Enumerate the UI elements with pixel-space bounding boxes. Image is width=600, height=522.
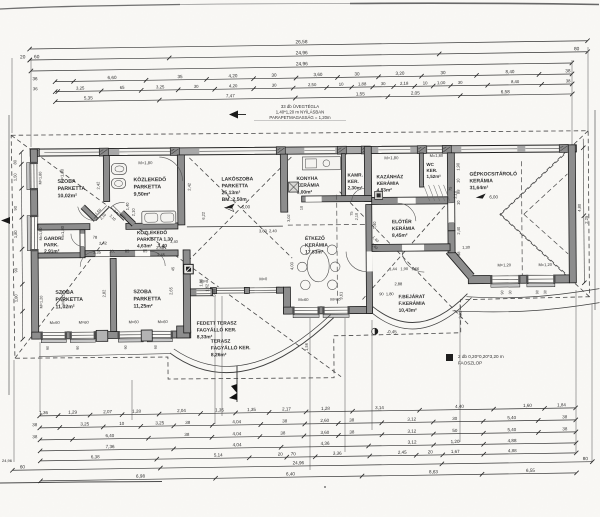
svg-text:2,04: 2,04 xyxy=(177,408,186,413)
svg-text:M=60: M=60 xyxy=(129,319,140,324)
svg-text:M=1,20: M=1,20 xyxy=(538,262,552,267)
svg-text:6,00: 6,00 xyxy=(489,194,498,199)
svg-text:20: 20 xyxy=(428,449,434,454)
svg-text:65: 65 xyxy=(120,85,125,90)
svg-text:1,90: 1,90 xyxy=(455,162,460,171)
svg-text:26,58: 26,58 xyxy=(295,39,307,45)
svg-text:30: 30 xyxy=(543,290,547,294)
svg-text:1,56: 1,56 xyxy=(304,342,309,351)
svg-text:30: 30 xyxy=(452,416,458,421)
svg-text:M=1,80: M=1,80 xyxy=(59,168,64,183)
svg-text:2,42: 2,42 xyxy=(99,241,108,246)
svg-text:30: 30 xyxy=(354,71,360,76)
svg-text:6,98: 6,98 xyxy=(136,474,145,479)
svg-text:3,60: 3,60 xyxy=(313,72,322,77)
svg-text:3,25: 3,25 xyxy=(156,84,165,89)
svg-text:3,14: 3,14 xyxy=(375,405,384,410)
svg-text:38: 38 xyxy=(184,432,190,437)
svg-text:3,80 2,40: 3,80 2,40 xyxy=(259,228,278,233)
svg-text:2,42: 2,42 xyxy=(96,181,101,190)
svg-text:30: 30 xyxy=(381,81,386,86)
svg-text:80: 80 xyxy=(583,456,589,461)
svg-text:4,40: 4,40 xyxy=(455,404,464,409)
svg-text:3,25: 3,25 xyxy=(76,85,85,90)
svg-text:1,67: 1,67 xyxy=(451,449,460,454)
svg-text:5,00: 5,00 xyxy=(211,288,216,297)
svg-text:M=1,80: M=1,80 xyxy=(60,225,65,240)
svg-text:1,20: 1,20 xyxy=(451,439,460,444)
svg-text:3,20: 3,20 xyxy=(395,71,404,76)
svg-text:4,36: 4,36 xyxy=(321,441,330,446)
svg-text:2,65: 2,65 xyxy=(168,286,173,295)
svg-text:3,12: 3,12 xyxy=(407,417,416,422)
svg-text:1,36: 1,36 xyxy=(39,410,48,415)
svg-text:35: 35 xyxy=(177,74,183,79)
svg-text:5,35: 5,35 xyxy=(84,95,93,100)
svg-text:38: 38 xyxy=(280,431,286,436)
svg-text:M=60: M=60 xyxy=(158,319,169,324)
svg-text:7,36: 7,36 xyxy=(106,444,115,449)
svg-text:6,55: 6,55 xyxy=(526,468,535,473)
svg-text:2,45: 2,45 xyxy=(398,450,407,455)
svg-text:30: 30 xyxy=(458,80,463,85)
svg-text:2,88: 2,88 xyxy=(394,281,403,286)
svg-text:10: 10 xyxy=(339,82,344,87)
svg-text:1,80: 1,80 xyxy=(198,278,203,287)
svg-text:38: 38 xyxy=(562,426,568,431)
svg-text:M=60: M=60 xyxy=(330,297,341,302)
svg-text:2,40: 2,40 xyxy=(456,226,461,235)
svg-text:6,58: 6,58 xyxy=(501,89,510,94)
svg-text:M=1,20: M=1,20 xyxy=(60,290,65,305)
svg-text:38: 38 xyxy=(565,68,571,73)
svg-text:38: 38 xyxy=(282,418,288,423)
svg-text:90 1,80: 90 1,80 xyxy=(379,291,394,296)
svg-text:70: 70 xyxy=(291,451,297,456)
svg-text:7,47: 7,47 xyxy=(226,93,235,98)
svg-text:4,04: 4,04 xyxy=(233,442,242,447)
svg-text:2,17: 2,17 xyxy=(282,406,291,411)
svg-text:5,40: 5,40 xyxy=(507,427,516,432)
svg-text:2,82: 2,82 xyxy=(101,289,106,298)
svg-text:1,30: 1,30 xyxy=(462,245,471,250)
svg-text:4,88: 4,88 xyxy=(508,438,517,443)
svg-text:4,88: 4,88 xyxy=(508,448,517,453)
svg-text:1,80: 1,80 xyxy=(13,294,18,303)
svg-text:2,10: 2,10 xyxy=(131,208,136,217)
svg-text:38: 38 xyxy=(32,422,38,427)
svg-text:6,60: 6,60 xyxy=(108,75,117,80)
svg-text:5,14: 5,14 xyxy=(214,452,223,457)
svg-text:3,40: 3,40 xyxy=(170,239,179,244)
svg-text:1,62: 1,62 xyxy=(204,283,209,292)
svg-text:10: 10 xyxy=(423,80,428,85)
svg-text:1,50: 1,50 xyxy=(12,173,17,182)
svg-text:60: 60 xyxy=(20,464,26,469)
svg-text:3,12: 3,12 xyxy=(407,429,416,434)
svg-text:45: 45 xyxy=(171,267,175,271)
svg-text:M=0: M=0 xyxy=(259,276,268,281)
svg-text:1,84: 1,84 xyxy=(557,402,566,407)
svg-text:90: 90 xyxy=(500,290,504,294)
svg-text:2,42: 2,42 xyxy=(187,182,192,191)
svg-text:2,07: 2,07 xyxy=(103,409,112,414)
svg-text:10: 10 xyxy=(300,206,304,210)
svg-text:24,96: 24,96 xyxy=(296,50,308,56)
svg-text:6,00: 6,00 xyxy=(241,204,250,209)
svg-text:M=1,80: M=1,80 xyxy=(39,228,43,241)
svg-text:M=1,80: M=1,80 xyxy=(38,172,42,185)
svg-text:2,40: 2,40 xyxy=(372,221,377,230)
svg-text:1,80: 1,80 xyxy=(13,230,18,239)
svg-text:M=60: M=60 xyxy=(79,320,90,325)
svg-text:80: 80 xyxy=(574,46,580,52)
svg-text:20: 20 xyxy=(278,452,284,457)
svg-text:36: 36 xyxy=(32,76,38,81)
svg-text:38: 38 xyxy=(349,417,355,422)
svg-text:2 db 0,20*0,20*3,20 m: 2 db 0,20*0,20*3,20 m xyxy=(458,354,504,359)
svg-text:1,29: 1,29 xyxy=(68,410,77,415)
svg-text:1,88: 1,88 xyxy=(358,81,367,86)
svg-text:36: 36 xyxy=(33,86,38,91)
svg-text:2,50: 2,50 xyxy=(308,82,317,87)
svg-text:38: 38 xyxy=(185,420,191,425)
svg-text:M=1,80: M=1,80 xyxy=(384,155,399,160)
svg-text:1,44 1,90 1,66: 1,44 1,90 1,66 xyxy=(389,266,420,271)
svg-text:3,25: 3,25 xyxy=(80,421,89,426)
svg-text:90: 90 xyxy=(76,346,80,350)
svg-text:3,25: 3,25 xyxy=(155,420,164,425)
svg-text:6,40: 6,40 xyxy=(286,471,295,476)
svg-text:4,80: 4,80 xyxy=(577,203,582,212)
svg-text:8,63: 8,63 xyxy=(429,469,438,474)
svg-text:4,00: 4,00 xyxy=(289,261,294,270)
svg-text:M=1,80: M=1,80 xyxy=(430,153,444,158)
svg-text:2,60: 2,60 xyxy=(320,418,329,423)
svg-text:6,22: 6,22 xyxy=(201,211,206,220)
svg-text:1,60: 1,60 xyxy=(523,403,532,408)
svg-text:4,04: 4,04 xyxy=(232,419,241,424)
svg-text:4,04: 4,04 xyxy=(232,431,241,436)
svg-text:50: 50 xyxy=(452,428,458,433)
svg-text:24,96: 24,96 xyxy=(293,460,305,465)
svg-text:30: 30 xyxy=(440,70,446,75)
svg-text:M=1,20: M=1,20 xyxy=(497,262,511,267)
svg-text:2,10: 2,10 xyxy=(453,190,458,199)
svg-text:1,28: 1,28 xyxy=(132,409,141,414)
svg-text:2,18: 2,18 xyxy=(400,81,409,86)
svg-text:FAOSZLOP: FAOSZLOP xyxy=(458,361,482,366)
svg-text:1,00: 1,00 xyxy=(437,80,446,85)
svg-text:2,25: 2,25 xyxy=(584,215,589,224)
svg-text:2,45: 2,45 xyxy=(157,252,166,257)
svg-text:30: 30 xyxy=(194,84,199,89)
svg-text:2,35: 2,35 xyxy=(93,250,102,255)
svg-text:30: 30 xyxy=(508,290,512,294)
svg-text:90: 90 xyxy=(154,345,158,349)
svg-text:60: 60 xyxy=(34,54,40,60)
svg-text:5,40: 5,40 xyxy=(507,415,516,420)
svg-text:8,40: 8,40 xyxy=(511,79,520,84)
svg-text:38: 38 xyxy=(32,434,38,439)
svg-text:1,35: 1,35 xyxy=(215,407,224,412)
svg-text:6,38: 6,38 xyxy=(91,454,100,459)
svg-text:2,48: 2,48 xyxy=(156,245,165,250)
svg-text:38: 38 xyxy=(562,414,568,419)
svg-text:4,20: 4,20 xyxy=(229,83,238,88)
svg-text:20: 20 xyxy=(20,54,26,60)
svg-text:3,36: 3,36 xyxy=(333,451,342,456)
svg-text:1,40: 1,40 xyxy=(125,202,130,211)
svg-text:75: 75 xyxy=(350,211,354,215)
svg-text:8,40: 8,40 xyxy=(505,69,514,74)
svg-text:3,12: 3,12 xyxy=(408,440,417,445)
svg-text:4,20: 4,20 xyxy=(228,73,237,78)
svg-text:30: 30 xyxy=(271,73,277,78)
svg-text:1,28: 1,28 xyxy=(321,406,330,411)
svg-text:3,60: 3,60 xyxy=(320,430,329,435)
svg-text:6,40: 6,40 xyxy=(105,433,114,438)
svg-text:38: 38 xyxy=(349,429,355,434)
svg-text:90: 90 xyxy=(535,290,539,294)
svg-text:M=1,80: M=1,80 xyxy=(138,160,153,165)
svg-text:30: 30 xyxy=(272,83,277,88)
svg-text:90: 90 xyxy=(46,346,50,350)
svg-text:-0,45: -0,45 xyxy=(387,329,398,334)
svg-text:M=60: M=60 xyxy=(50,320,61,325)
svg-text:90: 90 xyxy=(124,345,128,349)
svg-text:M=60: M=60 xyxy=(298,297,309,302)
svg-text:2,05: 2,05 xyxy=(411,91,420,96)
svg-text:10,: 10, xyxy=(109,248,115,253)
svg-text:3,02: 3,02 xyxy=(287,214,291,221)
svg-text:24,96: 24,96 xyxy=(296,61,308,67)
svg-text:38: 38 xyxy=(566,78,571,83)
svg-text:1,55: 1,55 xyxy=(356,91,365,96)
svg-text:24,96: 24,96 xyxy=(2,458,13,463)
svg-text:2,10: 2,10 xyxy=(355,213,359,220)
svg-text:1,35: 1,35 xyxy=(247,407,256,412)
svg-text:M=1,20: M=1,20 xyxy=(39,296,43,309)
svg-text:10: 10 xyxy=(119,421,125,426)
